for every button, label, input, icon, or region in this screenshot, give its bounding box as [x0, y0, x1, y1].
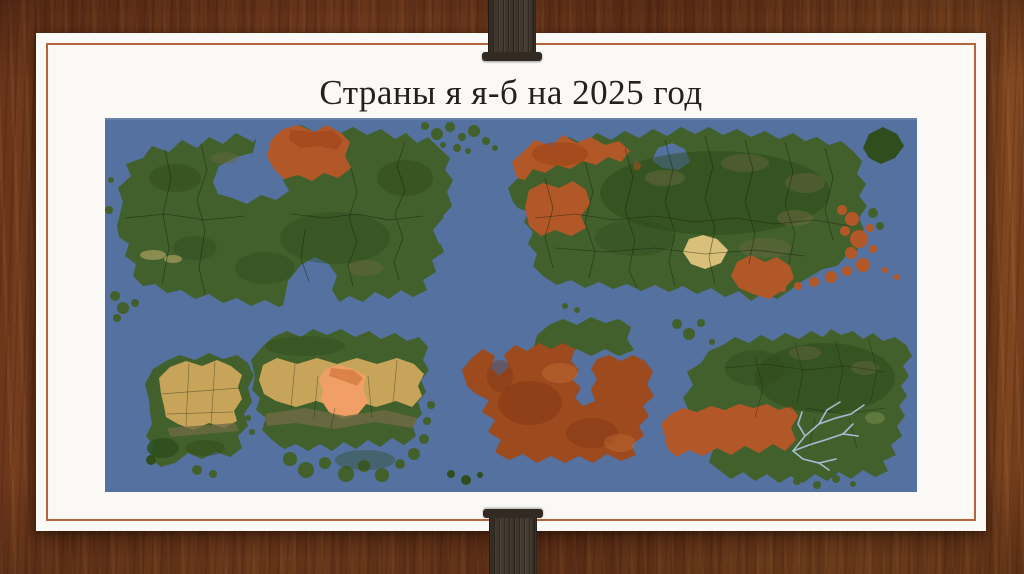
slide-title: Страны я я-б на 2025 год — [36, 75, 986, 110]
wooden-desk-background: Страны я я-б на 2025 год — [0, 0, 1024, 574]
top-strap — [488, 0, 536, 57]
world-map-image — [105, 118, 917, 492]
presentation-slide: Страны я я-б на 2025 год — [36, 33, 986, 531]
bottom-strap — [489, 513, 537, 574]
